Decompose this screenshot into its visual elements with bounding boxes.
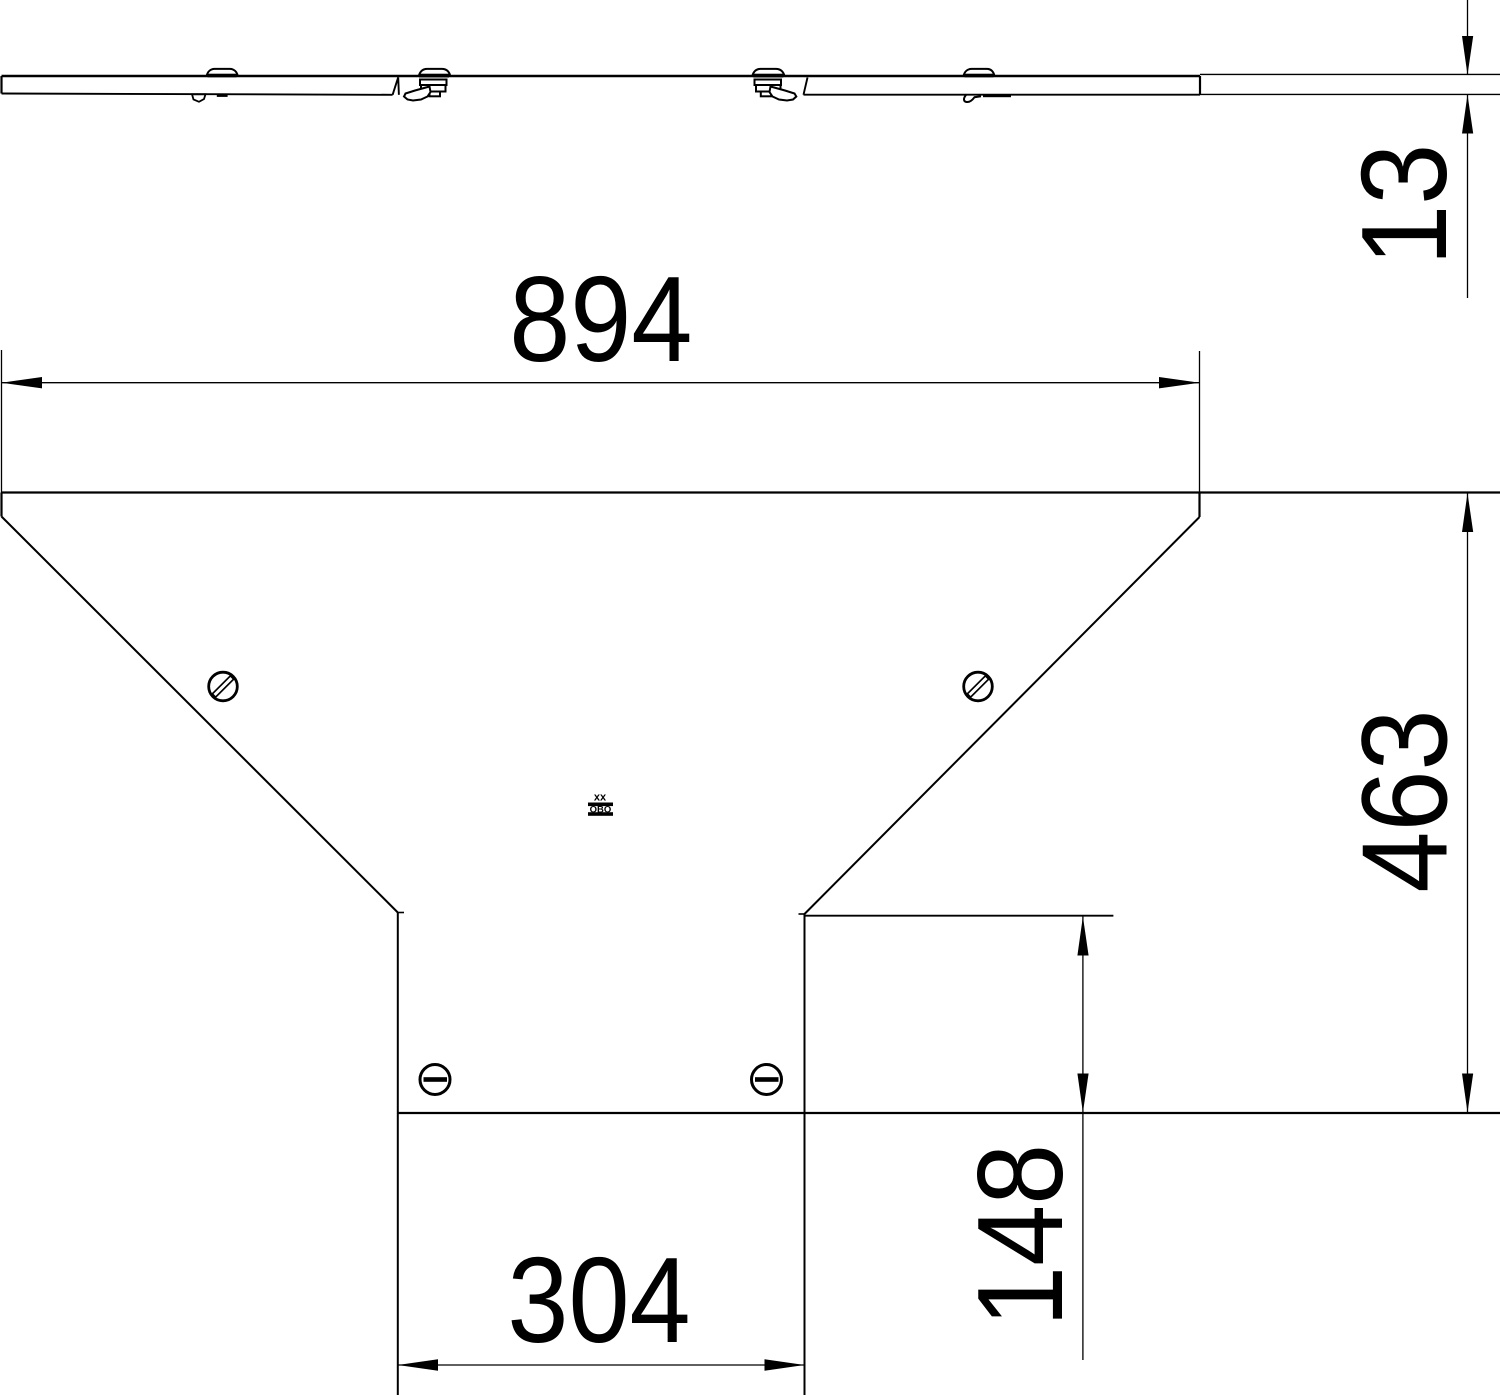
svg-text:894: 894 [509,251,692,388]
svg-text:xx: xx [594,792,607,804]
svg-text:304: 304 [507,1232,690,1369]
svg-text:148: 148 [952,1144,1089,1327]
svg-text:463: 463 [1336,709,1473,892]
svg-text:13: 13 [1336,144,1473,266]
